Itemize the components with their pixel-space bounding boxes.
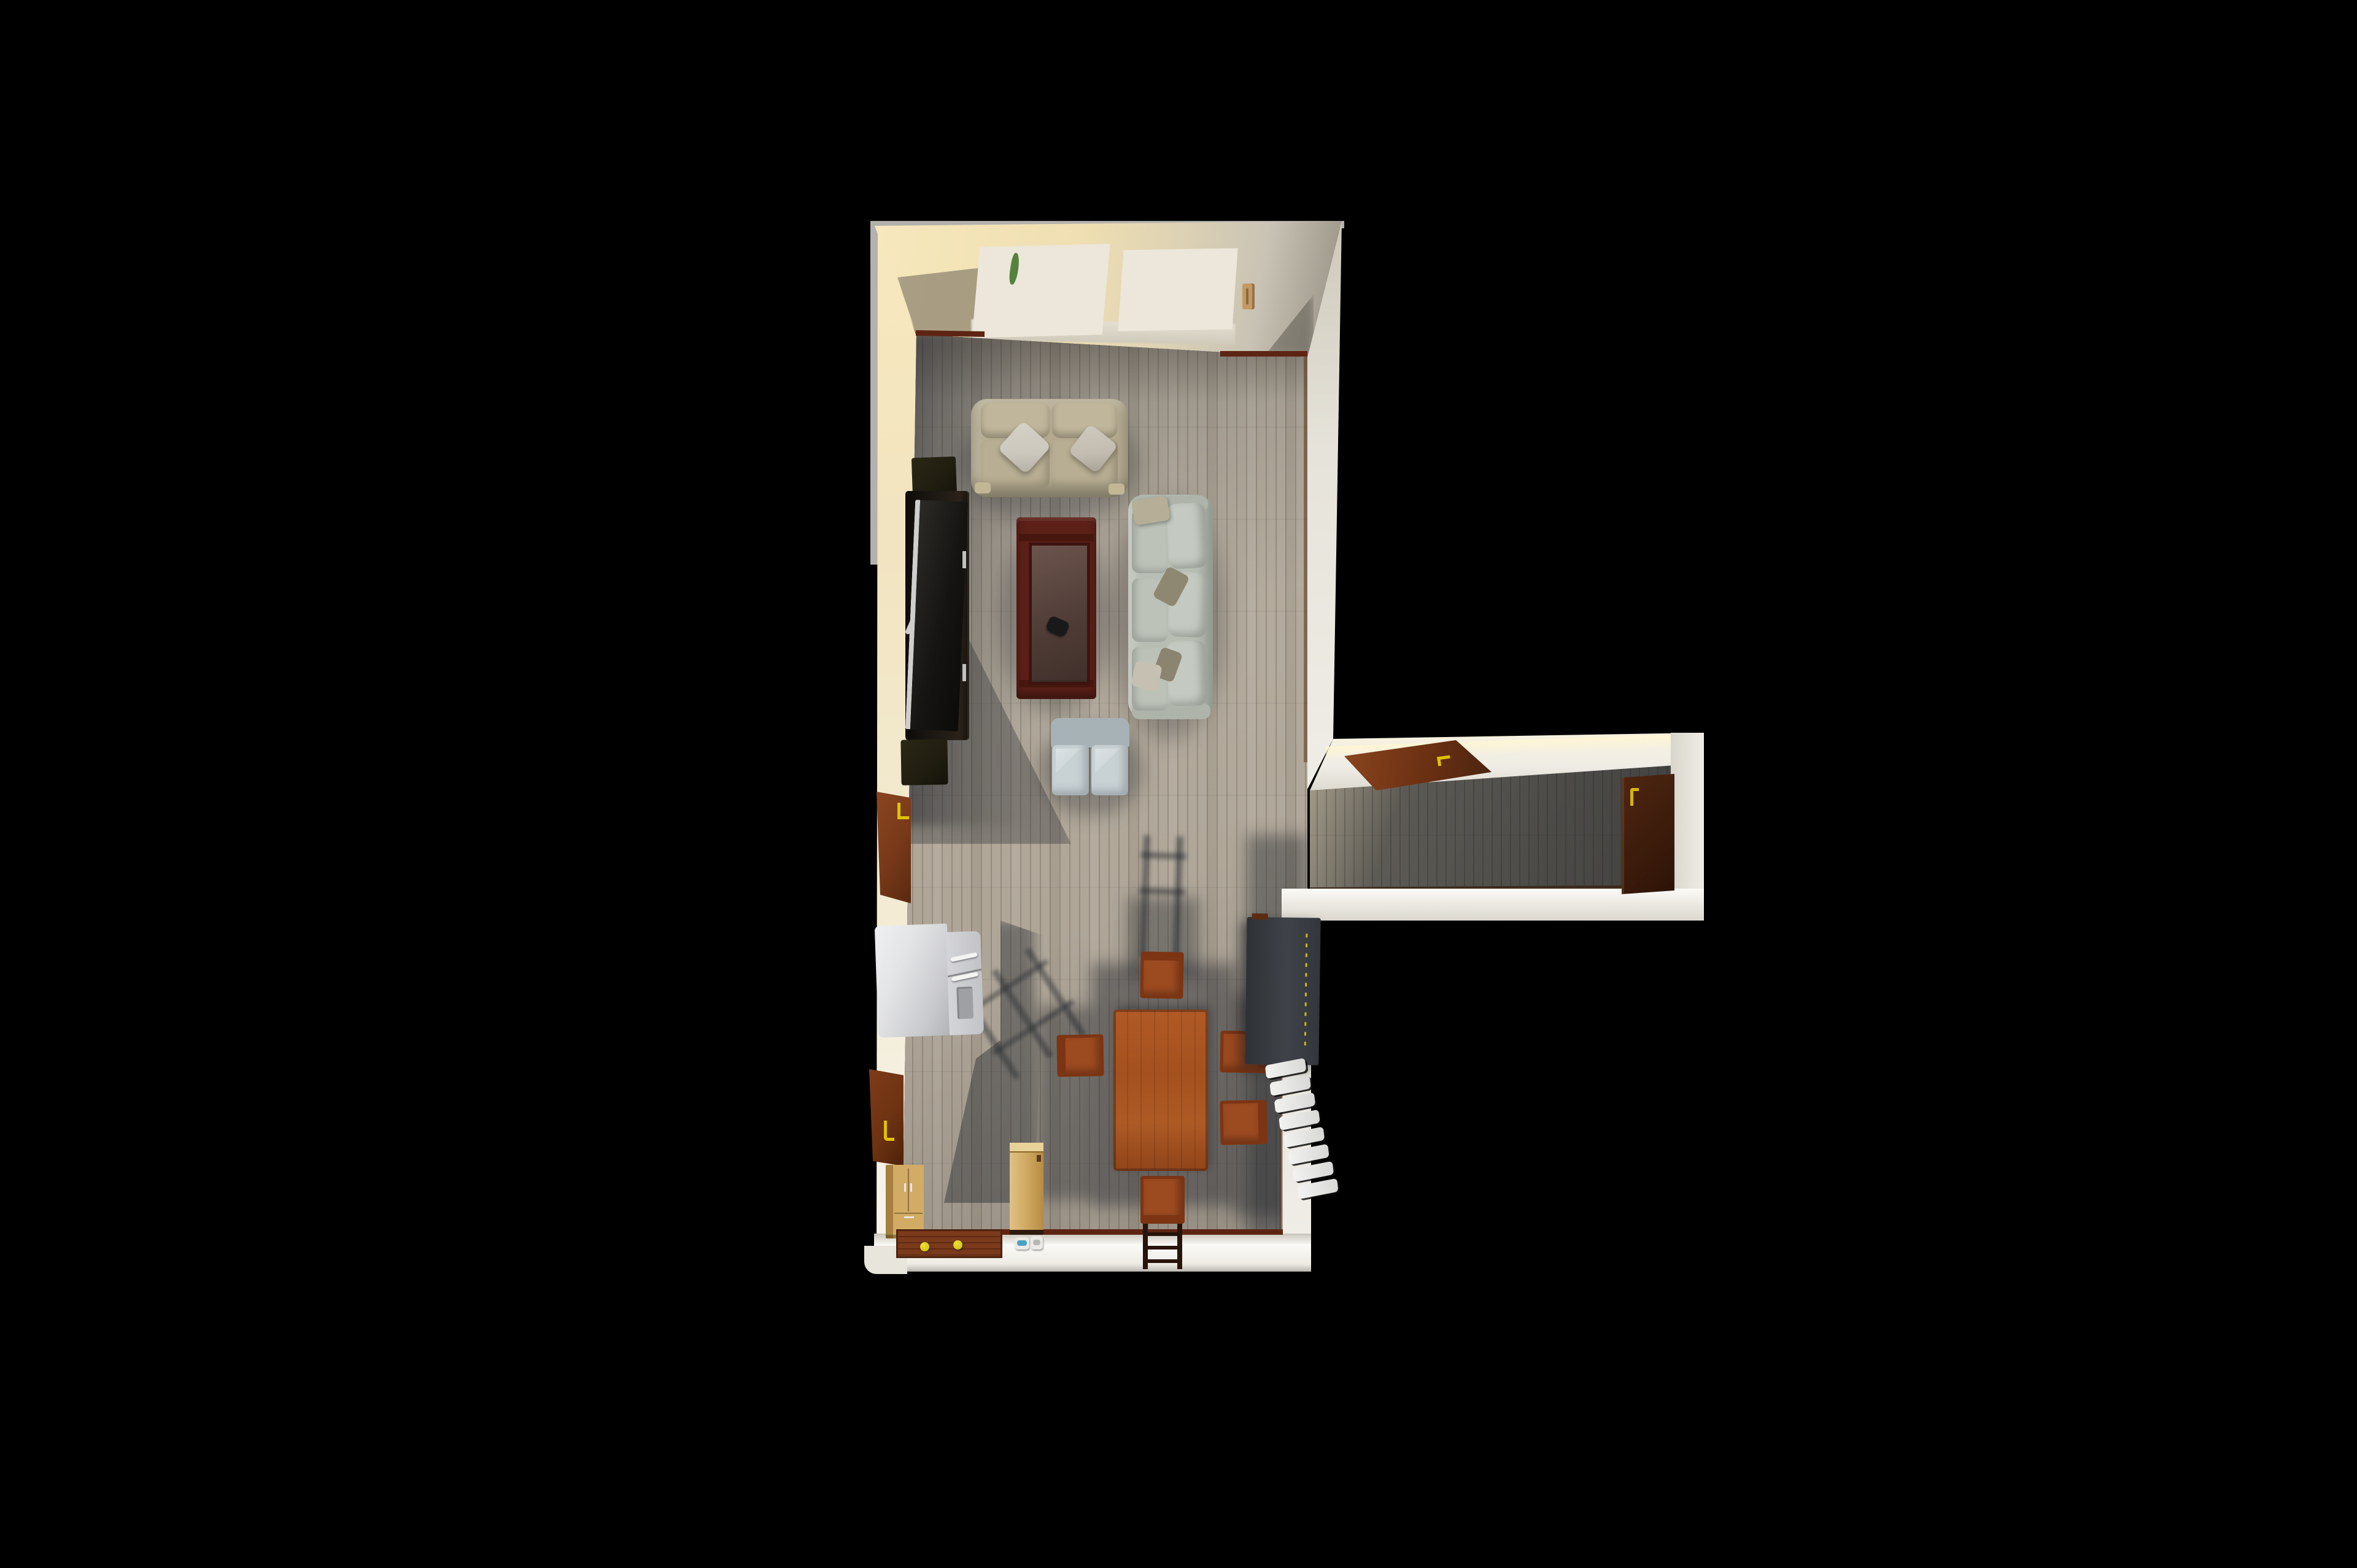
bowl-water xyxy=(1017,1240,1027,1246)
fridge[interactable] xyxy=(875,922,984,1041)
toy-ball[interactable] xyxy=(953,1240,962,1249)
cabinet-top xyxy=(1010,1143,1043,1153)
cabinet-handle xyxy=(910,1183,912,1192)
coffee-table-glass xyxy=(1029,543,1090,685)
fridge-front xyxy=(946,931,984,1035)
dining-chair-ladder-back xyxy=(1139,1224,1187,1270)
sideboard-wood-trim xyxy=(1252,913,1268,919)
hallway-end-door[interactable] xyxy=(1622,774,1674,894)
tv[interactable] xyxy=(905,500,968,731)
door-mat[interactable] xyxy=(896,1229,1002,1258)
ottoman[interactable] xyxy=(1051,718,1129,747)
floorplan-canvas[interactable]: Aerial 3D rendering of an L-shaped apart… xyxy=(0,0,2357,1326)
baseboard-top-left xyxy=(916,330,985,337)
speaker-bottom[interactable] xyxy=(900,739,948,785)
wall-left-rim xyxy=(870,221,878,565)
tv-bracket xyxy=(962,664,966,681)
baseboard-top-right xyxy=(1220,351,1307,357)
shadow-chair-back xyxy=(1134,835,1197,959)
tv-bracket xyxy=(962,551,966,568)
pet-bowls[interactable] xyxy=(1015,1235,1043,1251)
cabinet-handle xyxy=(1037,1155,1041,1162)
pillow[interactable] xyxy=(1131,660,1163,691)
bowl-food xyxy=(1033,1240,1040,1245)
cabinet-handle xyxy=(904,1183,906,1192)
loveseat-foot xyxy=(975,482,991,493)
loveseat-foot xyxy=(1109,484,1124,495)
sideboard-stitch-line xyxy=(1304,934,1308,1051)
dining-table[interactable] xyxy=(1113,1010,1208,1171)
door-handle-icon xyxy=(884,1121,894,1141)
fridge-dispenser xyxy=(956,987,973,1019)
dining-chair-top[interactable] xyxy=(1140,951,1183,998)
window-right[interactable] xyxy=(1118,248,1237,331)
dining-chair-left[interactable] xyxy=(1056,1034,1104,1076)
fridge-top-panel xyxy=(875,924,951,1038)
tall-cabinet[interactable] xyxy=(1010,1143,1043,1235)
hallway-bottom-wall xyxy=(1282,889,1704,921)
sofa-back-cushion xyxy=(1166,502,1208,569)
small-cabinet[interactable] xyxy=(886,1165,924,1238)
baseboard-right-upper xyxy=(1304,356,1307,762)
coffee-table-apron xyxy=(1019,534,1094,541)
toy-ball[interactable] xyxy=(920,1242,929,1251)
sideboard[interactable] xyxy=(1245,917,1320,1065)
hallway-end-door-handle-icon xyxy=(1630,788,1639,806)
dining-chair-right-2[interactable] xyxy=(1220,1100,1267,1145)
cabinet-handle xyxy=(904,1216,914,1218)
window-left[interactable] xyxy=(972,244,1110,338)
left-wall-cabinet-door[interactable] xyxy=(869,1069,904,1166)
hallway-top-door-handle-icon xyxy=(1437,755,1451,767)
window-handle[interactable] xyxy=(1242,284,1255,309)
dining-chair-bottom[interactable] xyxy=(1140,1176,1185,1224)
door-handle-icon xyxy=(897,803,909,819)
